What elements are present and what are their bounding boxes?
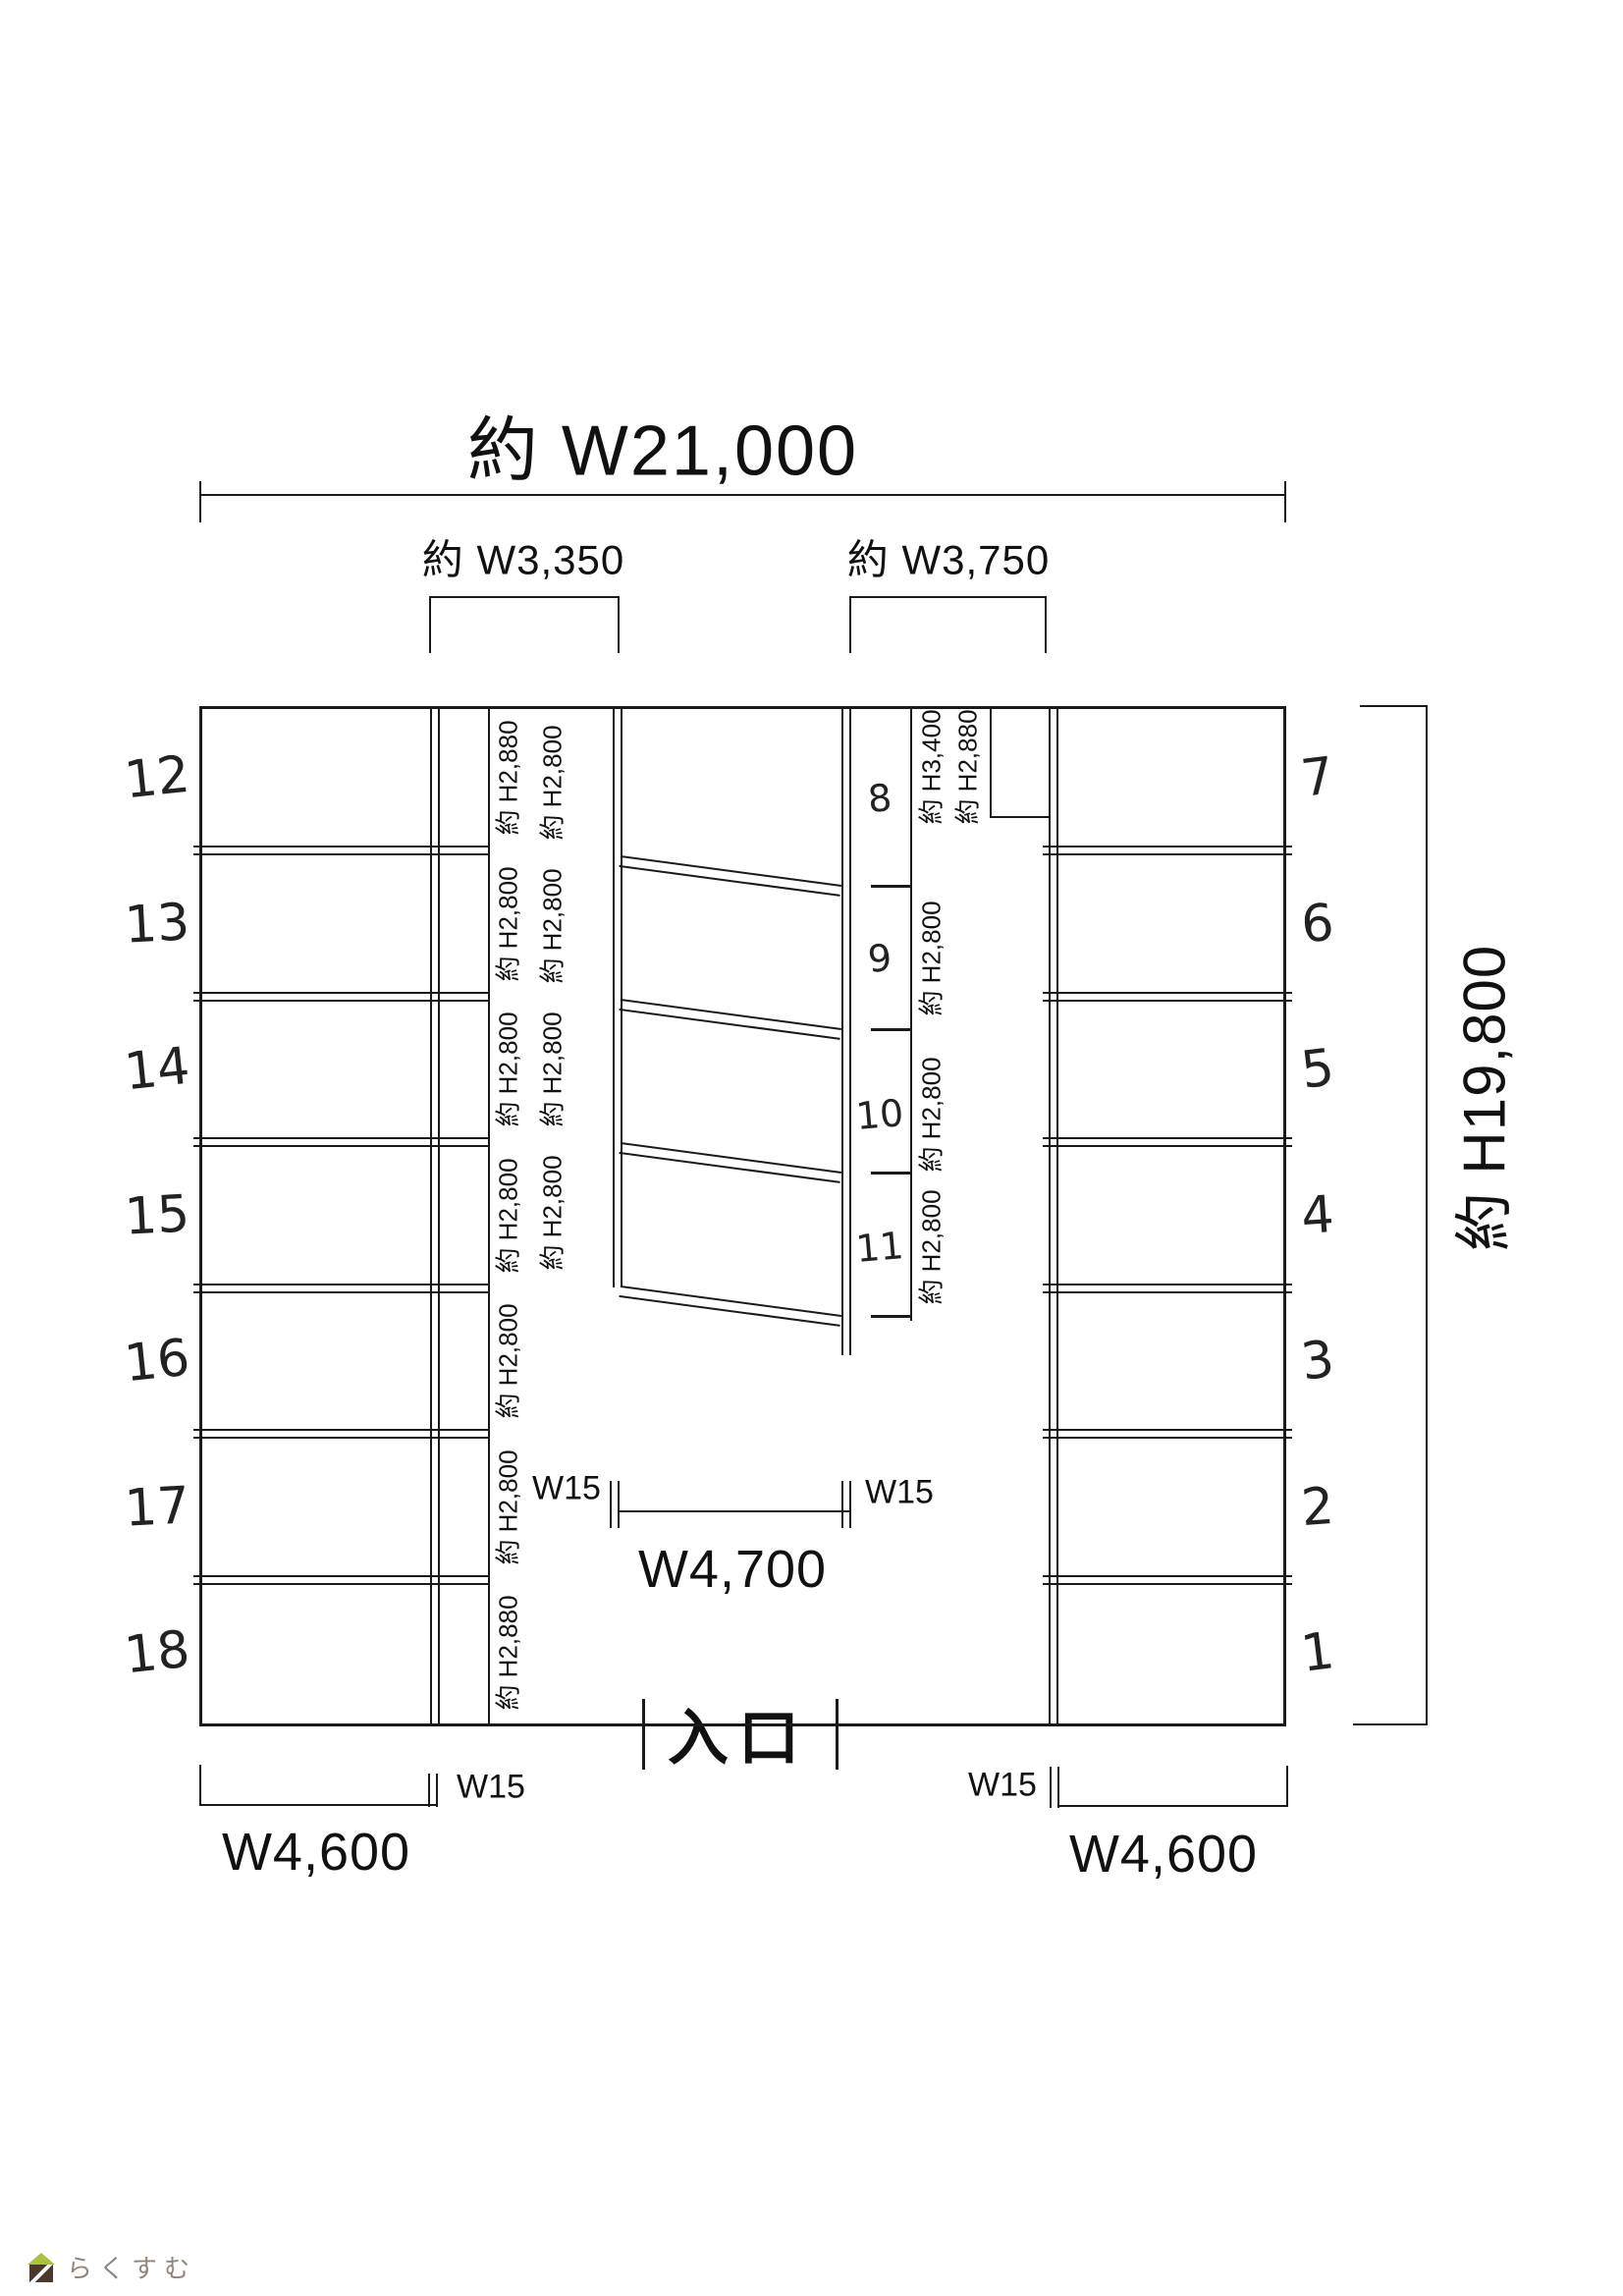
left-stall-divider	[193, 1284, 488, 1285]
left-stall-divider	[193, 1000, 488, 1002]
angled-area-left-wall	[613, 706, 615, 1287]
left-stall-divider	[193, 1437, 488, 1439]
dim-tick	[1057, 1767, 1059, 1808]
left-stall-depth-label: 約 H2,800	[489, 1303, 525, 1418]
dim-tick	[428, 1774, 430, 1807]
middle-stall-tick	[871, 1028, 910, 1031]
site-logo: らくすむ	[27, 2253, 196, 2282]
angled-stall-divider	[619, 855, 841, 897]
dim-tick	[1045, 596, 1047, 653]
bottom-left-dim-line	[199, 1804, 437, 1806]
left-stall-divider	[193, 846, 488, 847]
bottom-right-width-dimension: W4,600	[1069, 1824, 1258, 1885]
middle-stall-tick	[871, 1315, 910, 1318]
dim-tick	[618, 596, 620, 653]
right-stall-number: 6	[1299, 894, 1335, 955]
right-stall-number: 7	[1298, 746, 1337, 809]
middle-stall-depth-label: 約 H2,880	[948, 709, 985, 824]
dim-tick	[618, 1481, 620, 1528]
overall-height-dimension: 約 H19,800	[1437, 945, 1523, 1252]
entrance-label: 入口	[668, 1688, 809, 1777]
left-stall-depth-label: 約 H2,800	[489, 1011, 525, 1126]
left-stall-number: 13	[123, 893, 190, 955]
left-column-edge-wall	[430, 706, 432, 1725]
angled-stall-divider	[619, 999, 841, 1040]
middle-stall-tick	[871, 1172, 910, 1175]
left-stall-divider	[193, 853, 488, 855]
plan-outline-left	[199, 706, 202, 1726]
middle-stall-left-depth-label: 約 H2,800	[533, 725, 569, 840]
middle-stall-depth-label: 約 H2,800	[912, 901, 948, 1015]
left-stall-number: 17	[123, 1476, 190, 1538]
middle-stall-number: 9	[866, 936, 893, 981]
dim-tick	[610, 1481, 612, 1528]
wall-thickness-label: W15	[532, 1470, 601, 1508]
left-stall-number: 18	[122, 1620, 192, 1686]
middle-stall-depth-label: 約 H2,800	[912, 1057, 948, 1172]
left-stall-depth-label: 約 H2,880	[489, 720, 525, 835]
dim-tick	[841, 1481, 843, 1528]
left-stall-divider	[193, 1291, 488, 1293]
dim-tick	[199, 481, 201, 522]
dim-tick	[849, 596, 851, 653]
right-stall-number: 3	[1298, 1330, 1337, 1393]
angled-area-left-wall	[621, 706, 622, 1287]
middle-stall-tick	[871, 885, 910, 888]
right-stall-divider	[1043, 853, 1292, 855]
right-stall-number: 4	[1299, 1185, 1335, 1246]
left-stall-divider	[193, 992, 488, 994]
angled-stall-divider	[619, 1142, 841, 1183]
right-column-edge-wall	[1049, 706, 1051, 1725]
house-roof-icon	[27, 2253, 55, 2265]
overall-width-dim-line	[199, 494, 1286, 496]
middle-stall-left-depth-label: 約 H2,800	[533, 1011, 569, 1126]
bottom-left-width-dimension: W4,600	[222, 1822, 410, 1883]
middle-stall-depth-label: 約 H3,400	[912, 709, 948, 824]
dim-tick	[849, 1481, 851, 1528]
left-stall-divider	[193, 1583, 488, 1585]
left-stall-depth-label: 約 H2,800	[489, 1158, 525, 1273]
parking-plan-canvas: 約 W21,000 約 W3,350 約 W3,750 約 H19,800 W4…	[0, 0, 1623, 2296]
left-stall-depth-label: 約 H2,800	[489, 1449, 525, 1564]
left-stall-depth-label: 約 H2,880	[489, 1595, 525, 1710]
left-stall-divider	[193, 1575, 488, 1577]
left-column-edge-wall	[438, 706, 440, 1725]
plan-outline-top	[199, 706, 1286, 709]
right-stall-number: 2	[1299, 1477, 1335, 1538]
left-bay-width-dimension: 約 W3,350	[422, 527, 624, 587]
notch-wall	[990, 706, 992, 818]
left-stall-divider	[193, 1145, 488, 1147]
middle-stall-depth-label: 約 H2,800	[912, 1189, 948, 1304]
left-stall-number: 16	[122, 1329, 192, 1394]
entrance-tick	[836, 1699, 839, 1770]
left-stall-divider	[193, 1429, 488, 1431]
house-body-icon	[29, 2265, 53, 2282]
wall-thickness-label: W15	[865, 1474, 934, 1512]
right-stall-number: 5	[1298, 1038, 1337, 1101]
notch-wall	[990, 816, 1051, 818]
dim-tick	[1286, 1766, 1288, 1807]
right-stall-divider	[1043, 1291, 1292, 1293]
middle-stall-left-depth-label: 約 H2,800	[533, 868, 569, 983]
right-bay-dim-bracket	[849, 596, 1047, 598]
dim-tick	[1050, 1767, 1052, 1808]
logo-text: らくすむ	[67, 2255, 196, 2282]
right-stall-divider	[1043, 1145, 1292, 1147]
entrance-tick	[642, 1699, 645, 1770]
right-stall-divider	[1043, 1284, 1292, 1285]
right-stall-divider	[1043, 846, 1292, 847]
left-stall-number: 15	[123, 1184, 190, 1246]
right-stall-divider	[1043, 1000, 1292, 1002]
middle-stall-left-depth-label: 約 H2,800	[533, 1155, 569, 1270]
right-bay-width-dimension: 約 W3,750	[847, 527, 1050, 587]
center-opening-width-dimension: W4,700	[638, 1539, 827, 1600]
wall-thickness-label: W15	[968, 1767, 1037, 1805]
dim-tick	[1284, 481, 1286, 522]
left-stall-divider	[193, 1137, 488, 1139]
center-opening-dim-line	[619, 1510, 850, 1512]
left-bay-dim-bracket	[429, 596, 620, 598]
left-stall-number: 12	[122, 745, 192, 811]
dim-tick	[1360, 705, 1428, 707]
right-stall-number: 1	[1298, 1621, 1337, 1684]
dim-tick	[429, 596, 431, 653]
right-stall-divider	[1043, 1583, 1292, 1585]
right-stall-divider	[1043, 1429, 1292, 1431]
dim-tick	[199, 1765, 201, 1806]
middle-stall-number: 8	[866, 776, 893, 821]
plan-outline-right	[1283, 706, 1286, 1726]
plan-outline-bottom	[199, 1723, 1286, 1726]
dim-tick	[436, 1774, 438, 1807]
right-stall-divider	[1043, 1137, 1292, 1139]
bottom-right-dim-line	[1058, 1805, 1288, 1807]
middle-stall-number: 11	[854, 1224, 905, 1271]
middle-stall-number: 10	[854, 1091, 905, 1138]
house-icon	[27, 2253, 55, 2282]
angled-area-right-wall	[849, 706, 851, 1355]
left-stall-depth-label: 約 H2,800	[489, 866, 525, 981]
right-stall-divider	[1043, 1437, 1292, 1439]
overall-height-dim-line	[1426, 706, 1428, 1725]
angled-stall-divider	[619, 1285, 841, 1327]
dim-tick	[1353, 1723, 1428, 1725]
right-stall-divider	[1043, 992, 1292, 994]
overall-width-dimension: 約 W21,000	[467, 393, 858, 496]
angled-area-right-wall	[841, 706, 843, 1355]
right-stall-divider	[1043, 1575, 1292, 1577]
right-column-edge-wall	[1056, 706, 1058, 1725]
wall-thickness-label: W15	[457, 1769, 525, 1807]
left-stall-number: 14	[122, 1037, 192, 1103]
